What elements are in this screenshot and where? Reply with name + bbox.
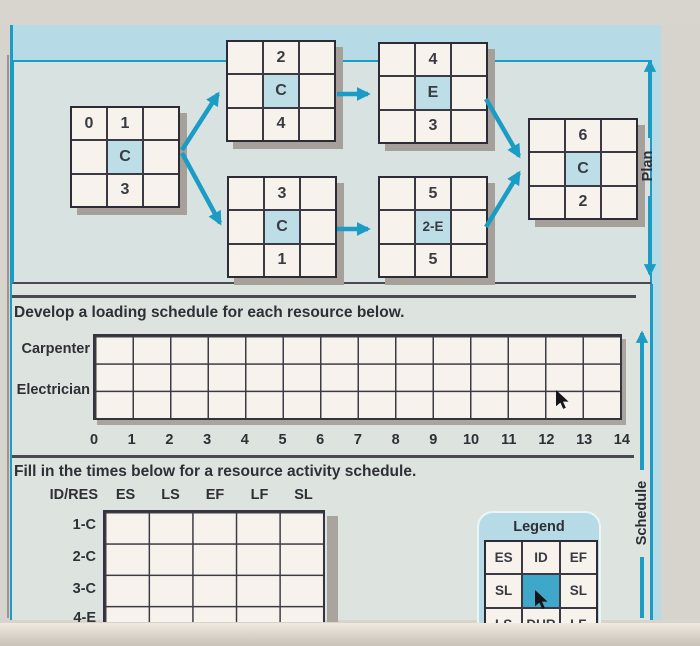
node-resource-cell: C	[108, 141, 142, 172]
column-header-lf: LF	[237, 487, 282, 503]
node-id-cell: 4	[416, 44, 450, 75]
axis-tick: 14	[611, 432, 633, 448]
schedule-side-label: Schedule	[634, 471, 652, 555]
activity-node-4: 4 E 3	[378, 42, 488, 144]
table-row-label: 2-C	[40, 549, 96, 565]
node-sl-cell	[452, 77, 486, 108]
node-ef-cell	[602, 120, 636, 151]
column-header-sl: SL	[282, 487, 325, 503]
node-ls-cell	[229, 245, 263, 276]
node-resource-cell: 2-E	[416, 211, 450, 242]
time-axis: 0 1 2 3 4 5 6 7 8 9 10 11 12 13 14	[83, 432, 633, 448]
panel-right-border	[650, 284, 653, 620]
carpenter-row-label: Carpenter	[8, 341, 90, 357]
node-id-cell: 3	[265, 178, 299, 209]
legend-title: Legend	[477, 519, 601, 535]
node-lf-cell	[300, 109, 334, 140]
photo-margin-top	[0, 0, 700, 25]
worksheet-page: 0 1 C 3 2 C 4 3 C 1 4 E	[0, 0, 700, 646]
node-sl-cell	[300, 75, 334, 106]
loading-schedule-grid	[93, 334, 622, 420]
node-sl-cell	[380, 211, 414, 242]
axis-tick: 12	[535, 432, 557, 448]
axis-tick: 8	[385, 432, 407, 448]
legend-id-cell: ID	[523, 542, 558, 573]
node-lf-cell	[452, 245, 486, 276]
legend-ef-cell: EF	[561, 542, 596, 573]
node-ef-cell	[144, 108, 178, 139]
section-divider	[12, 295, 636, 298]
node-sl-cell	[301, 211, 335, 242]
axis-tick: 5	[272, 432, 294, 448]
node-id-cell: 6	[566, 120, 600, 151]
axis-tick: 7	[347, 432, 369, 448]
node-dur-cell: 2	[566, 187, 600, 218]
activity-node-3: 3 C 1	[227, 176, 337, 278]
table-shadow	[327, 516, 338, 622]
node-sl-cell	[452, 211, 486, 242]
column-header-ls: LS	[148, 487, 193, 503]
node-dur-cell: 4	[264, 109, 298, 140]
axis-tick: 4	[234, 432, 256, 448]
node-ls-cell	[72, 175, 106, 206]
node-sl-cell	[228, 75, 262, 106]
node-es-cell	[228, 42, 262, 73]
node-dur-cell: 5	[416, 245, 450, 276]
node-sl-cell	[380, 77, 414, 108]
legend-sl-cell: SL	[561, 575, 596, 606]
electrician-row-label: Electrician	[8, 382, 90, 398]
node-ls-cell	[530, 187, 564, 218]
activity-node-2: 2 C 4	[226, 40, 336, 142]
node-ls-cell	[380, 245, 414, 276]
node-es-cell	[530, 120, 564, 151]
node-es-cell: 0	[72, 108, 106, 139]
axis-tick: 2	[158, 432, 180, 448]
resource-activity-table	[103, 510, 325, 622]
legend-es-cell: ES	[486, 542, 521, 573]
axis-tick: 13	[573, 432, 595, 448]
panel-edge-shadow	[7, 55, 9, 618]
node-lf-cell	[144, 175, 178, 206]
node-ls-cell	[380, 111, 414, 142]
activity-node-6: 6 C 2	[528, 118, 638, 220]
column-header-ef: EF	[193, 487, 237, 503]
node-ef-cell	[300, 42, 334, 73]
node-es-cell	[380, 44, 414, 75]
node-resource-cell: C	[265, 211, 299, 242]
mouse-cursor-icon	[556, 390, 570, 410]
node-es-cell	[380, 178, 414, 209]
node-lf-cell	[301, 245, 335, 276]
node-ef-cell	[301, 178, 335, 209]
table-row-label: 1-C	[40, 517, 96, 533]
node-dur-cell: 1	[265, 245, 299, 276]
node-lf-cell	[452, 111, 486, 142]
node-sl-cell	[144, 141, 178, 172]
axis-tick: 0	[83, 432, 105, 448]
legend-sl-cell: SL	[486, 575, 521, 606]
node-dur-cell: 3	[108, 175, 142, 206]
node-ls-cell	[228, 109, 262, 140]
node-sl-cell	[229, 211, 263, 242]
node-resource-cell: C	[264, 75, 298, 106]
photo-margin-bottom	[0, 623, 700, 646]
node-sl-cell	[602, 153, 636, 184]
node-id-cell: 5	[416, 178, 450, 209]
axis-tick: 3	[196, 432, 218, 448]
axis-tick: 1	[121, 432, 143, 448]
node-lf-cell	[602, 187, 636, 218]
column-header-es: ES	[103, 487, 148, 503]
mouse-cursor-icon	[535, 590, 549, 610]
node-id-cell: 1	[108, 108, 142, 139]
node-es-cell	[229, 178, 263, 209]
section-divider	[12, 455, 634, 458]
node-id-cell: 2	[264, 42, 298, 73]
node-sl-cell	[530, 153, 564, 184]
node-ef-cell	[452, 178, 486, 209]
loading-instruction: Develop a loading schedule for each reso…	[14, 304, 404, 322]
node-dur-cell: 3	[416, 111, 450, 142]
node-resource-cell: E	[416, 77, 450, 108]
column-header-idres: ID/RES	[34, 487, 98, 503]
axis-tick: 9	[422, 432, 444, 448]
table-row-label: 3-C	[40, 581, 96, 597]
plan-side-label: Plan	[640, 145, 658, 187]
node-resource-cell: C	[566, 153, 600, 184]
node-ef-cell	[452, 44, 486, 75]
axis-tick: 6	[309, 432, 331, 448]
axis-tick: 10	[460, 432, 482, 448]
node-sl-cell	[72, 141, 106, 172]
schedule-instruction: Fill in the times below for a resource a…	[14, 463, 416, 481]
activity-node-5: 5 2-E 5	[378, 176, 488, 278]
activity-node-1: 0 1 C 3	[70, 106, 180, 208]
axis-tick: 11	[498, 432, 520, 448]
